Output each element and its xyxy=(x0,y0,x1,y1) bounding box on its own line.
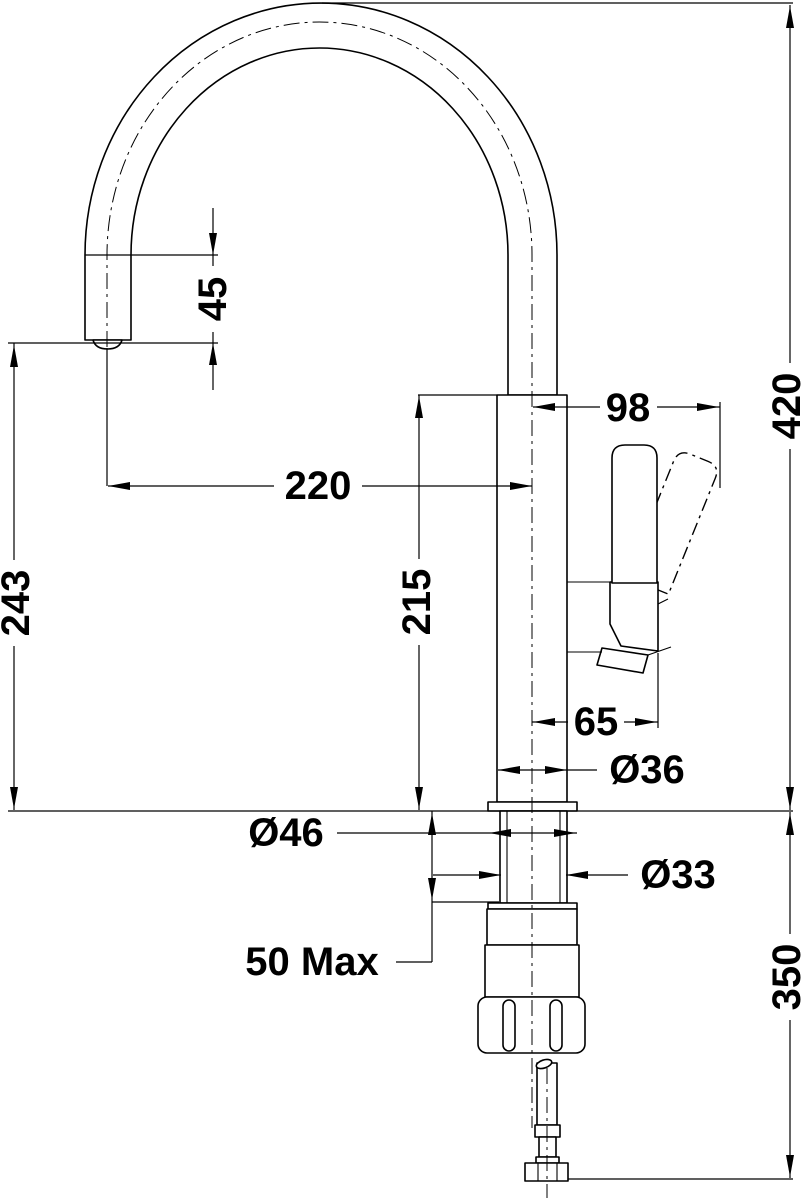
shank xyxy=(500,811,567,903)
spout-arc xyxy=(85,3,557,395)
dim-350-label: 350 xyxy=(765,944,805,1011)
technical-drawing-canvas: 45 243 215 420 350 220 98 65 Ø36 Ø46 Ø33… xyxy=(0,0,805,1200)
dim-d36-label: Ø36 xyxy=(609,748,685,792)
text-halos xyxy=(0,266,805,1020)
dim-220-label: 220 xyxy=(285,464,352,508)
dim-215-label: 215 xyxy=(395,569,439,636)
lever-tip xyxy=(597,648,648,673)
dim-d46-label: Ø46 xyxy=(248,811,324,855)
dim-50max-label: 50 Max xyxy=(245,940,378,984)
dim-243-label: 243 xyxy=(0,570,38,637)
dim-d33-label: Ø33 xyxy=(640,853,716,897)
dim-420-label: 420 xyxy=(765,373,805,440)
dim-98-label: 98 xyxy=(606,386,651,430)
handle xyxy=(612,445,657,583)
faucet-dimension-drawing: 45 243 215 420 350 220 98 65 Ø36 Ø46 Ø33… xyxy=(0,0,805,1200)
dim-45-label: 45 xyxy=(191,277,235,322)
dim-65-label: 65 xyxy=(574,700,619,744)
nut-groove-left xyxy=(503,1000,515,1051)
nut-groove-right xyxy=(550,1000,562,1051)
handle-joint xyxy=(610,582,658,651)
